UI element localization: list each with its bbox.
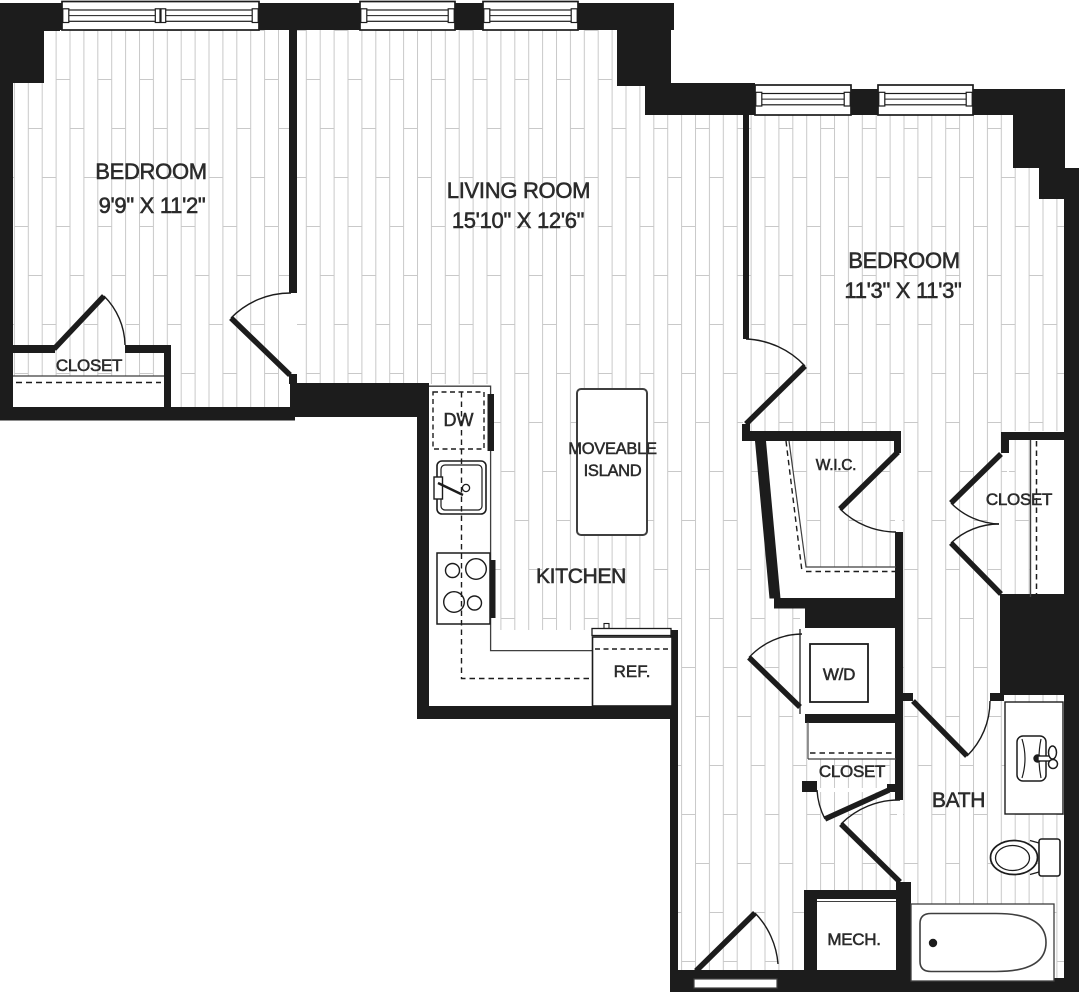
svg-text:CLOSET: CLOSET: [819, 762, 885, 781]
svg-text:MOVEABLE: MOVEABLE: [568, 440, 657, 458]
svg-text:BATH: BATH: [932, 789, 985, 812]
svg-text:CLOSET: CLOSET: [56, 356, 122, 375]
svg-text:REF.: REF.: [614, 662, 651, 681]
svg-text:LIVING ROOM: LIVING ROOM: [447, 178, 590, 203]
svg-text:CLOSET: CLOSET: [986, 490, 1052, 509]
svg-text:BEDROOM: BEDROOM: [848, 248, 960, 273]
svg-text:MECH.: MECH.: [827, 930, 880, 949]
svg-text:9'9" X 11'2": 9'9" X 11'2": [99, 193, 206, 218]
svg-text:W.I.C.: W.I.C.: [816, 457, 856, 474]
svg-text:15'10" X 12'6": 15'10" X 12'6": [452, 208, 584, 233]
svg-text:ISLAND: ISLAND: [584, 462, 642, 480]
svg-text:W/D: W/D: [823, 665, 855, 684]
svg-text:KITCHEN: KITCHEN: [536, 565, 626, 588]
svg-text:BEDROOM: BEDROOM: [95, 159, 207, 184]
svg-text:11'3" X 11'3": 11'3" X 11'3": [844, 278, 961, 303]
svg-text:DW: DW: [444, 410, 474, 430]
